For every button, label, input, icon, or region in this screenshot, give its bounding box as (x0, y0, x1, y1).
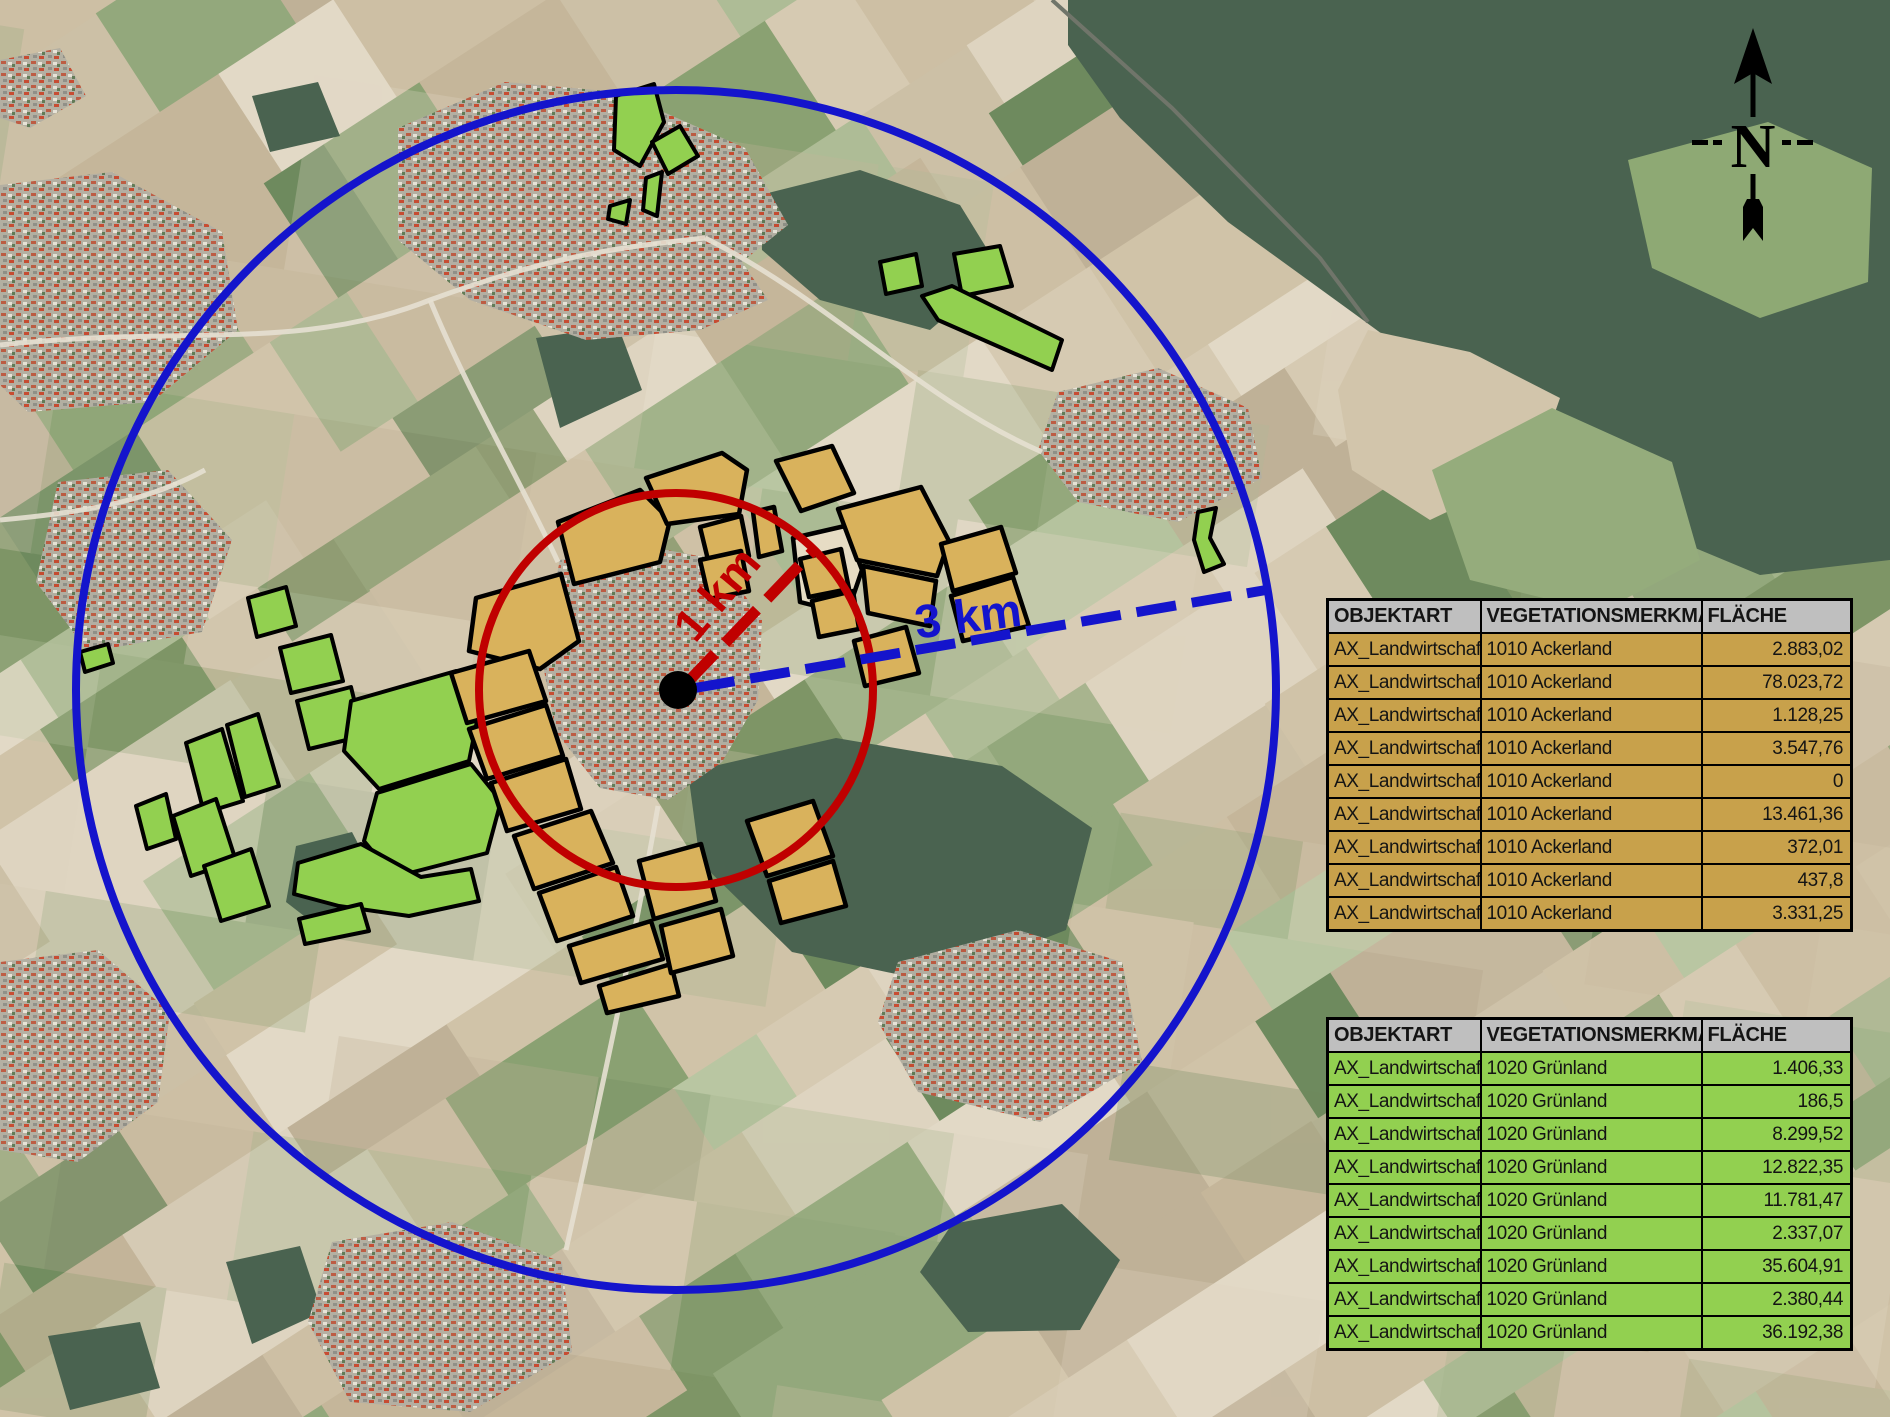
gruenland-polygon (880, 254, 922, 294)
table-cell: 1020 Grünland (1481, 1283, 1702, 1316)
table-row: AX_Landwirtschaft1020 Grünland186,5 (1328, 1085, 1852, 1118)
table-row: AX_Landwirtschaft1010 Ackerland3.331,25 (1328, 897, 1852, 931)
table-cell: 1010 Ackerland (1481, 831, 1702, 864)
table-cell: 1020 Grünland (1481, 1184, 1702, 1217)
table-cell: 1010 Ackerland (1481, 699, 1702, 732)
table-row: AX_Landwirtschaft1010 Ackerland1.128,25 (1328, 699, 1852, 732)
table-cell: AX_Landwirtschaft (1328, 831, 1481, 864)
table-cell: AX_Landwirtschaft (1328, 1250, 1481, 1283)
table-cell: AX_Landwirtschaft (1328, 1184, 1481, 1217)
table-cell: 1010 Ackerland (1481, 798, 1702, 831)
column-header: VEGETATIONSMERKMAL (1481, 600, 1702, 634)
gruenland-polygon (248, 587, 296, 637)
table-cell: AX_Landwirtschaft (1328, 1118, 1481, 1151)
column-header: FLÄCHE (1702, 1019, 1852, 1053)
table-cell: 1020 Grünland (1481, 1151, 1702, 1184)
table-cell: 8.299,52 (1702, 1118, 1852, 1151)
table-cell: 1020 Grünland (1481, 1217, 1702, 1250)
table-cell: 0 (1702, 765, 1852, 798)
table-cell: 1020 Grünland (1481, 1250, 1702, 1283)
column-header: VEGETATIONSMERKMAL (1481, 1019, 1702, 1053)
column-header: OBJEKTART (1328, 1019, 1481, 1053)
table-cell: AX_Landwirtschaft (1328, 864, 1481, 897)
table-row: AX_Landwirtschaft1020 Grünland35.604,91 (1328, 1250, 1852, 1283)
gruenland-polygon (643, 172, 662, 216)
table-cell: 12.822,35 (1702, 1151, 1852, 1184)
table-cell: AX_Landwirtschaft (1328, 666, 1481, 699)
table-cell: AX_Landwirtschaft (1328, 897, 1481, 931)
table-cell: 1020 Grünland (1481, 1316, 1702, 1350)
table-cell: AX_Landwirtschaft (1328, 1217, 1481, 1250)
table-cell: 2.337,07 (1702, 1217, 1852, 1250)
table-cell: 1020 Grünland (1481, 1052, 1702, 1085)
table-cell: 3.547,76 (1702, 732, 1852, 765)
table-cell: 1010 Ackerland (1481, 765, 1702, 798)
table-row: AX_Landwirtschaft1010 Ackerland372,01 (1328, 831, 1852, 864)
table-cell: AX_Landwirtschaft (1328, 798, 1481, 831)
table-cell: 1.406,33 (1702, 1052, 1852, 1085)
table-cell: 1010 Ackerland (1481, 864, 1702, 897)
table-cell: 13.461,36 (1702, 798, 1852, 831)
map-screenshot: 3 km1 kmN OBJEKTARTVEGETATIONSMERKMALFLÄ… (0, 0, 1890, 1417)
gruenland-table: OBJEKTARTVEGETATIONSMERKMALFLÄCHEAX_Land… (1326, 1017, 1853, 1351)
table-cell: 35.604,91 (1702, 1250, 1852, 1283)
table-cell: 11.781,47 (1702, 1184, 1852, 1217)
table-row: AX_Landwirtschaft1010 Ackerland13.461,36 (1328, 798, 1852, 831)
table-row: AX_Landwirtschaft1010 Ackerland78.023,72 (1328, 666, 1852, 699)
table-cell: 372,01 (1702, 831, 1852, 864)
table-cell: AX_Landwirtschaft (1328, 765, 1481, 798)
table-row: AX_Landwirtschaft1010 Ackerland437,8 (1328, 864, 1852, 897)
table-cell: AX_Landwirtschaft (1328, 699, 1481, 732)
table-cell: AX_Landwirtschaft (1328, 1151, 1481, 1184)
table-cell: 1020 Grünland (1481, 1085, 1702, 1118)
table-row: AX_Landwirtschaft1020 Grünland8.299,52 (1328, 1118, 1852, 1151)
table-cell: AX_Landwirtschaft (1328, 1052, 1481, 1085)
table-cell: AX_Landwirtschaft (1328, 732, 1481, 765)
table-cell: 1010 Ackerland (1481, 732, 1702, 765)
table-cell: AX_Landwirtschaft (1328, 1316, 1481, 1350)
gruenland-polygon (954, 246, 1012, 296)
table-row: AX_Landwirtschaft1010 Ackerland2.883,02 (1328, 633, 1852, 666)
table-cell: 2.883,02 (1702, 633, 1852, 666)
table-row: AX_Landwirtschaft1020 Grünland11.781,47 (1328, 1184, 1852, 1217)
column-header: FLÄCHE (1702, 600, 1852, 634)
table-cell: 2.380,44 (1702, 1283, 1852, 1316)
center-point (659, 671, 697, 709)
table-row: AX_Landwirtschaft1010 Ackerland0 (1328, 765, 1852, 798)
table-cell: AX_Landwirtschaft (1328, 1085, 1481, 1118)
column-header: OBJEKTART (1328, 600, 1481, 634)
table-cell: 78.023,72 (1702, 666, 1852, 699)
table-row: AX_Landwirtschaft1020 Grünland12.822,35 (1328, 1151, 1852, 1184)
gruenland-polygon (608, 200, 630, 224)
table-cell: AX_Landwirtschaft (1328, 1283, 1481, 1316)
table-cell: 186,5 (1702, 1085, 1852, 1118)
table-cell: 1.128,25 (1702, 699, 1852, 732)
table-row: AX_Landwirtschaft1020 Grünland36.192,38 (1328, 1316, 1852, 1350)
table-cell: 3.331,25 (1702, 897, 1852, 931)
ackerland-table: OBJEKTARTVEGETATIONSMERKMALFLÄCHEAX_Land… (1326, 598, 1853, 932)
table-row: AX_Landwirtschaft1020 Grünland1.406,33 (1328, 1052, 1852, 1085)
table-cell: 1010 Ackerland (1481, 897, 1702, 931)
table-row: AX_Landwirtschaft1010 Ackerland3.547,76 (1328, 732, 1852, 765)
table-cell: 437,8 (1702, 864, 1852, 897)
table-cell: AX_Landwirtschaft (1328, 633, 1481, 666)
table-cell: 1010 Ackerland (1481, 666, 1702, 699)
gruenland-polygon (280, 635, 343, 693)
north-label: N (1731, 113, 1776, 181)
table-row: AX_Landwirtschaft1020 Grünland2.337,07 (1328, 1217, 1852, 1250)
table-row: AX_Landwirtschaft1020 Grünland2.380,44 (1328, 1283, 1852, 1316)
table-cell: 1020 Grünland (1481, 1118, 1702, 1151)
table-cell: 1010 Ackerland (1481, 633, 1702, 666)
table-cell: 36.192,38 (1702, 1316, 1852, 1350)
